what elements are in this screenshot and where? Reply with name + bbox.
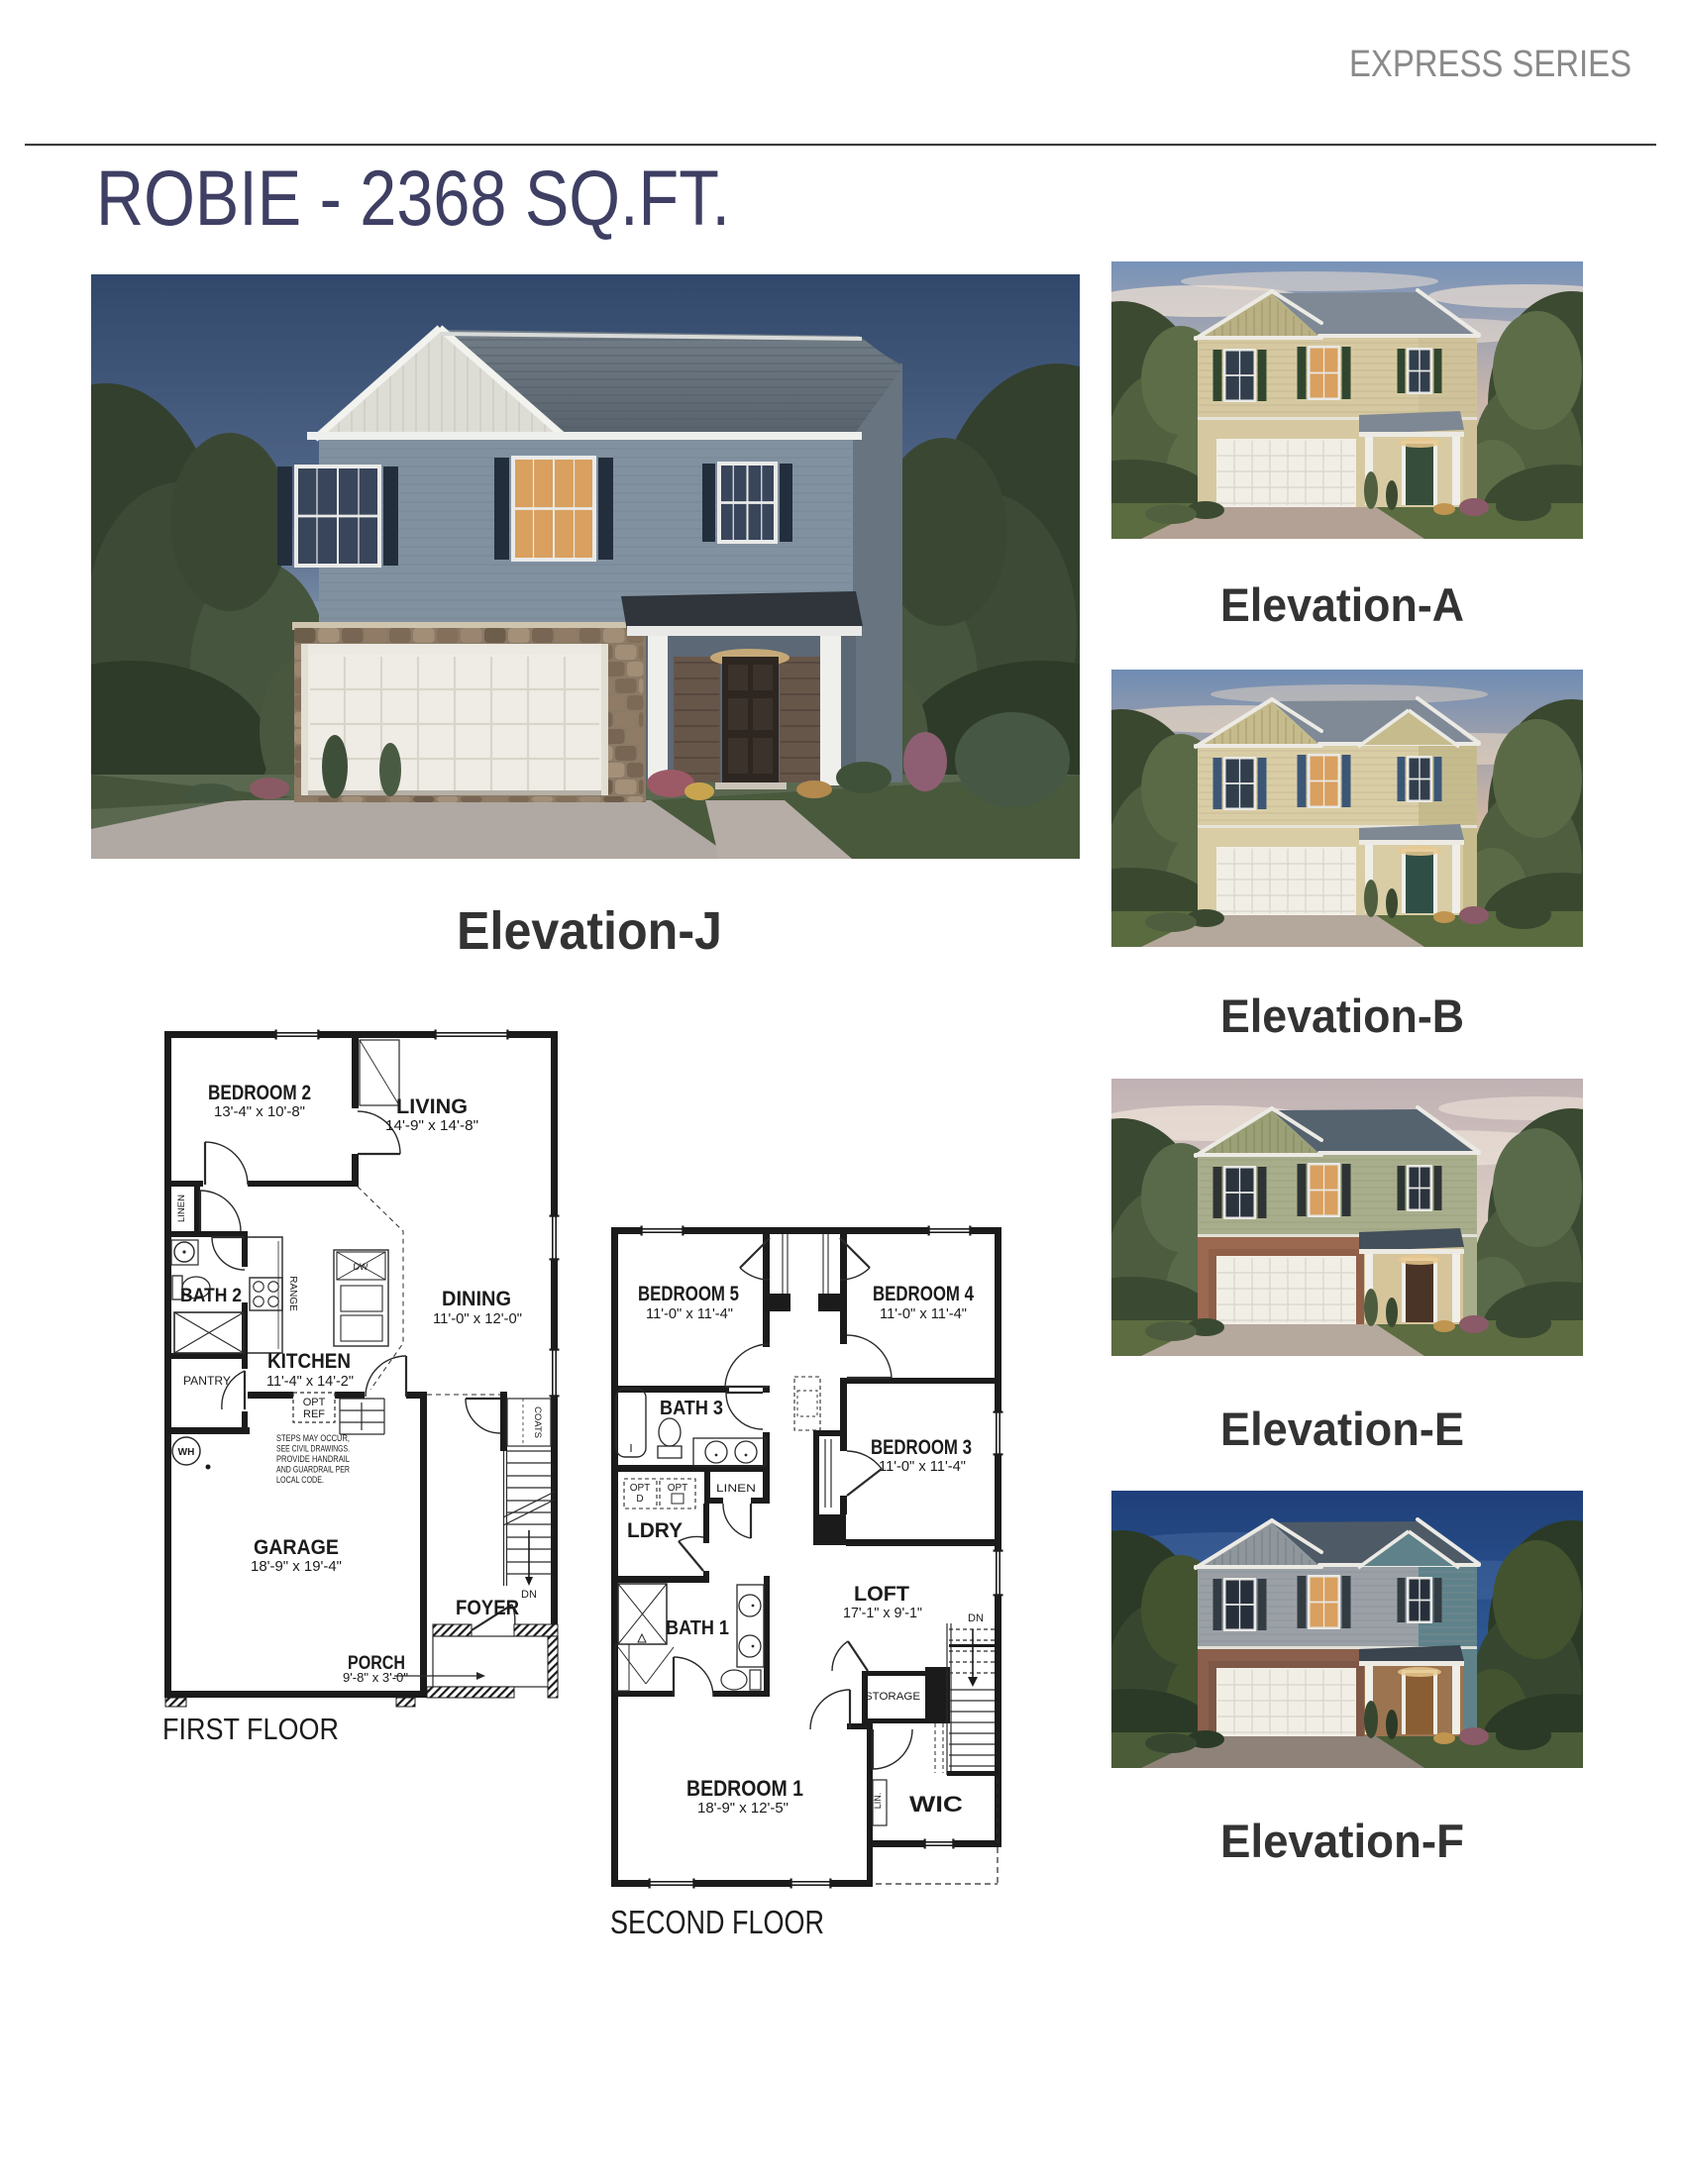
svg-text:D: D [636, 1494, 643, 1505]
svg-text:EXPRESS SERIES: EXPRESS SERIES [1349, 44, 1631, 85]
svg-text:Elevation-F: Elevation-F [1220, 1815, 1464, 1867]
svg-text:Elevation-J: Elevation-J [457, 901, 722, 961]
svg-text:OPT: OPT [668, 1483, 688, 1494]
svg-text:PROVIDE HANDRAIL: PROVIDE HANDRAIL [276, 1454, 350, 1464]
svg-text:DW: DW [354, 1262, 368, 1272]
svg-text:STEPS MAY OCCUR,: STEPS MAY OCCUR, [276, 1433, 350, 1443]
svg-text:BATH 2: BATH 2 [180, 1286, 242, 1306]
svg-text:BEDROOM 3: BEDROOM 3 [871, 1436, 972, 1459]
svg-text:KITCHEN: KITCHEN [267, 1350, 351, 1373]
svg-text:WIC: WIC [909, 1792, 963, 1817]
svg-text:DINING: DINING [442, 1288, 511, 1310]
svg-text:LOFT: LOFT [854, 1583, 909, 1606]
svg-text:Elevation-E: Elevation-E [1220, 1403, 1464, 1455]
svg-text:LIVING: LIVING [396, 1095, 468, 1118]
svg-text:REF: REF [303, 1408, 325, 1420]
svg-text:SECOND FLOOR: SECOND FLOOR [610, 1904, 824, 1940]
svg-text:DN: DN [521, 1589, 537, 1601]
svg-text:BATH 3: BATH 3 [660, 1398, 723, 1419]
svg-text:DN: DN [968, 1612, 984, 1624]
svg-text:FIRST FLOOR: FIRST FLOOR [162, 1712, 339, 1746]
svg-text:PANTRY: PANTRY [183, 1374, 231, 1388]
svg-text:GARAGE: GARAGE [254, 1536, 339, 1559]
svg-text:LOCAL CODE.: LOCAL CODE. [276, 1475, 324, 1485]
svg-text:Elevation-B: Elevation-B [1220, 989, 1464, 1042]
svg-text:OPT: OPT [303, 1397, 326, 1408]
svg-text:11'-0" x 11'-4": 11'-0" x 11'-4" [880, 1305, 967, 1322]
svg-text:RANGE: RANGE [287, 1276, 298, 1311]
svg-text:COATS: COATS [532, 1406, 543, 1438]
svg-text:18'-9" x 12'-5": 18'-9" x 12'-5" [697, 1800, 789, 1817]
svg-text:BEDROOM 4: BEDROOM 4 [873, 1283, 974, 1305]
svg-text:OPT: OPT [630, 1483, 651, 1494]
svg-text:11'-0" x 11'-4": 11'-0" x 11'-4" [879, 1458, 966, 1475]
svg-text:STORAGE: STORAGE [865, 1691, 920, 1703]
svg-text:ROBIE - 2368 SQ.FT.: ROBIE - 2368 SQ.FT. [96, 154, 730, 242]
svg-text:14'-9" x 14'-8": 14'-9" x 14'-8" [385, 1117, 478, 1134]
svg-text:BEDROOM 2: BEDROOM 2 [208, 1082, 311, 1104]
svg-text:Elevation-A: Elevation-A [1220, 578, 1464, 631]
svg-text:LINEN: LINEN [176, 1195, 187, 1222]
svg-text:AND GUARDRAIL PER: AND GUARDRAIL PER [276, 1465, 350, 1475]
svg-text:17'-1" x 9'-1": 17'-1" x 9'-1" [843, 1605, 922, 1621]
svg-text:11'-4" x 14'-2": 11'-4" x 14'-2" [266, 1373, 354, 1390]
svg-text:LIN.: LIN. [873, 1793, 883, 1810]
svg-text:BATH 1: BATH 1 [666, 1617, 729, 1639]
svg-text:SEE CIVIL DRAWINGS.: SEE CIVIL DRAWINGS. [276, 1444, 350, 1454]
svg-text:9'-8" x 3'-0": 9'-8" x 3'-0" [343, 1670, 408, 1685]
svg-text:LDRY: LDRY [627, 1519, 683, 1542]
svg-text:LINEN: LINEN [716, 1483, 756, 1495]
svg-text:11'-0" x 11'-4": 11'-0" x 11'-4" [646, 1305, 733, 1322]
svg-text:BEDROOM 1: BEDROOM 1 [686, 1776, 803, 1801]
svg-text:BEDROOM 5: BEDROOM 5 [638, 1283, 739, 1305]
svg-text:FOYER: FOYER [456, 1597, 519, 1619]
svg-text:13'-4" x 10'-8": 13'-4" x 10'-8" [214, 1103, 305, 1120]
svg-text:11'-0" x 12'-0": 11'-0" x 12'-0" [433, 1310, 522, 1327]
svg-text:18'-9" x 19'-4": 18'-9" x 19'-4" [251, 1558, 342, 1575]
svg-text:WH: WH [178, 1447, 195, 1458]
